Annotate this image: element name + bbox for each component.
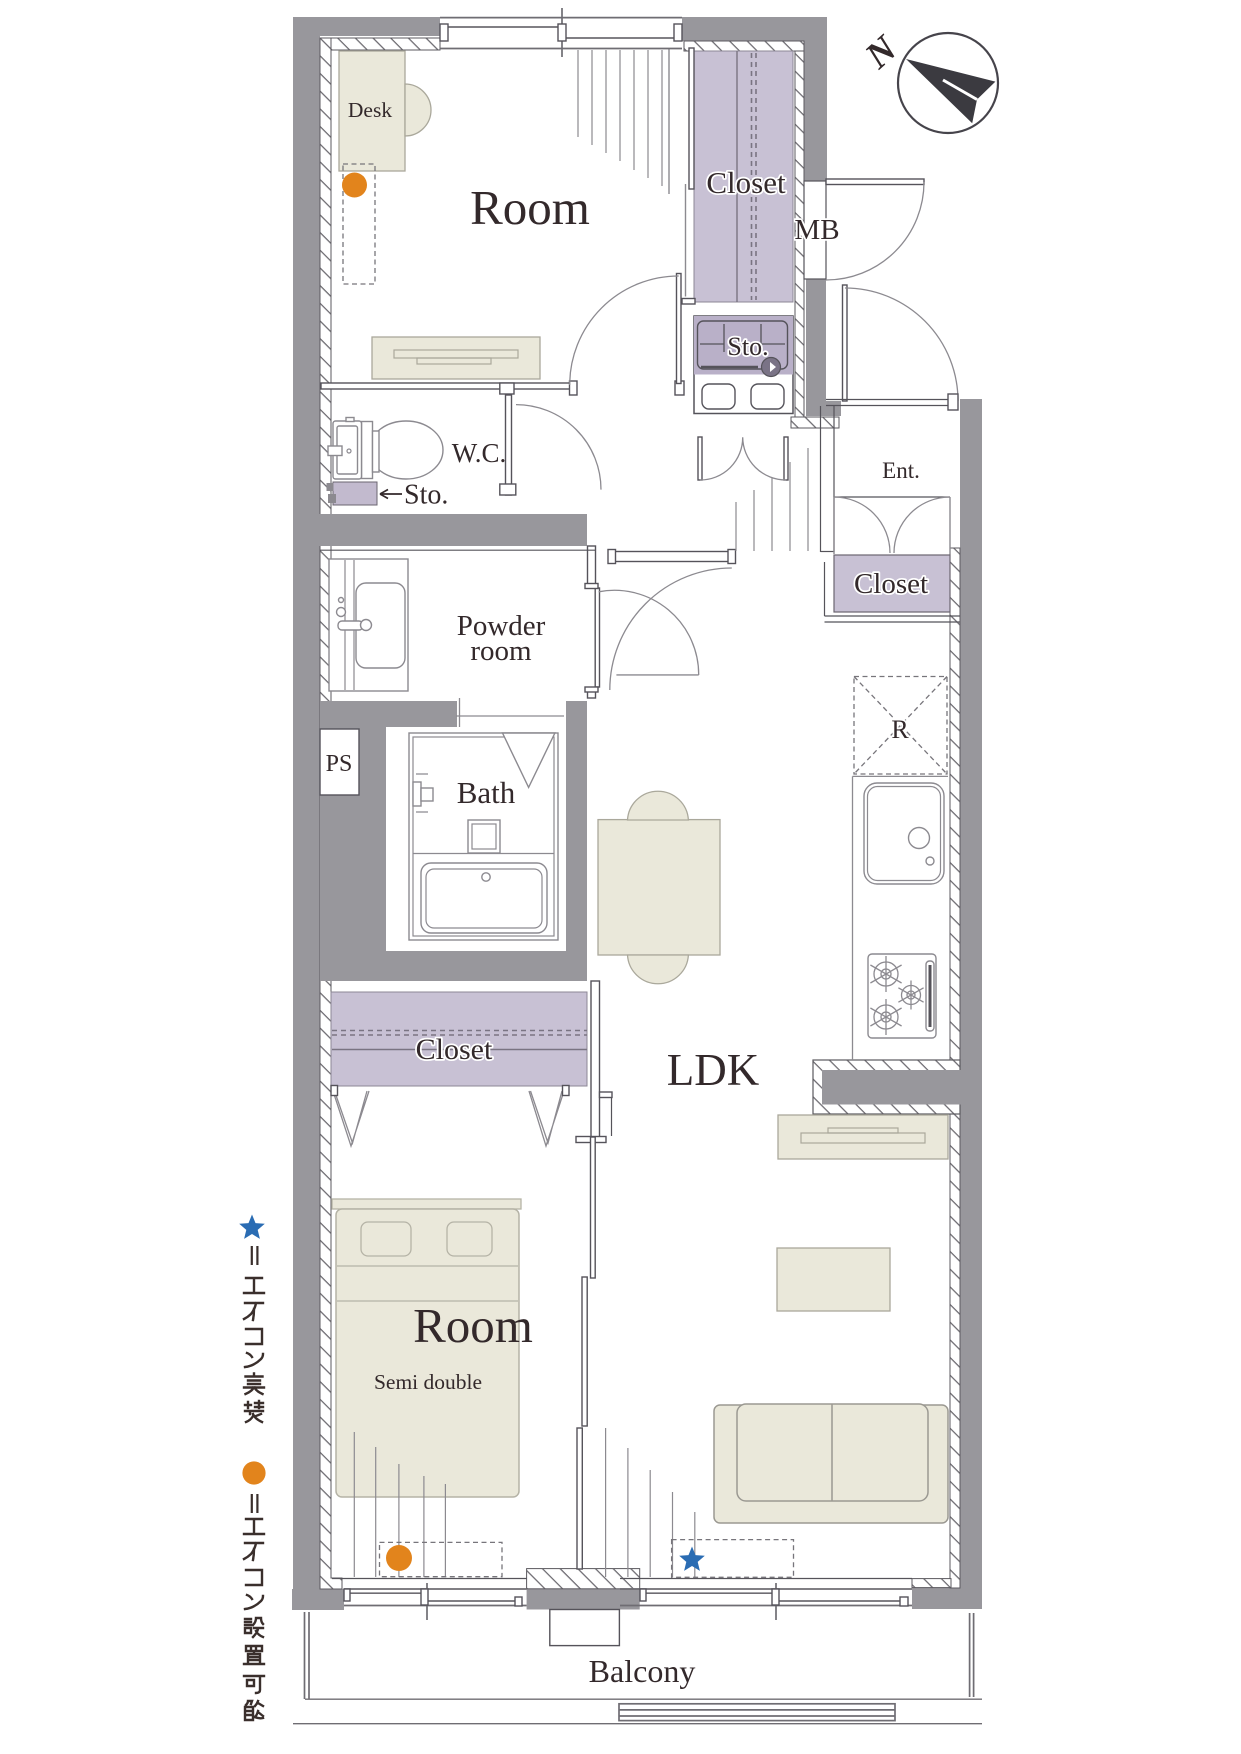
svg-text:Closet: Closet bbox=[854, 568, 928, 600]
svg-text:MB: MB bbox=[794, 214, 839, 246]
svg-text:Closet: Closet bbox=[416, 1033, 493, 1066]
svg-text:Room: Room bbox=[413, 1298, 533, 1353]
svg-text:Semi double: Semi double bbox=[374, 1370, 482, 1394]
svg-text:LDK: LDK bbox=[667, 1045, 760, 1095]
svg-text:Balcony: Balcony bbox=[589, 1653, 696, 1689]
svg-text:Ent.: Ent. bbox=[882, 458, 920, 483]
svg-text:W.C.: W.C. bbox=[452, 438, 507, 468]
svg-text:Bath: Bath bbox=[457, 775, 516, 810]
svg-text:Room: Room bbox=[470, 180, 590, 235]
svg-text:Sto.: Sto. bbox=[727, 332, 768, 361]
svg-text:R: R bbox=[891, 715, 909, 744]
svg-text:Sto.: Sto. bbox=[404, 480, 448, 511]
svg-text:Desk: Desk bbox=[348, 98, 392, 122]
svg-text:room: room bbox=[470, 635, 532, 667]
svg-text:Closet: Closet bbox=[706, 165, 786, 200]
svg-text:PS: PS bbox=[326, 751, 353, 777]
